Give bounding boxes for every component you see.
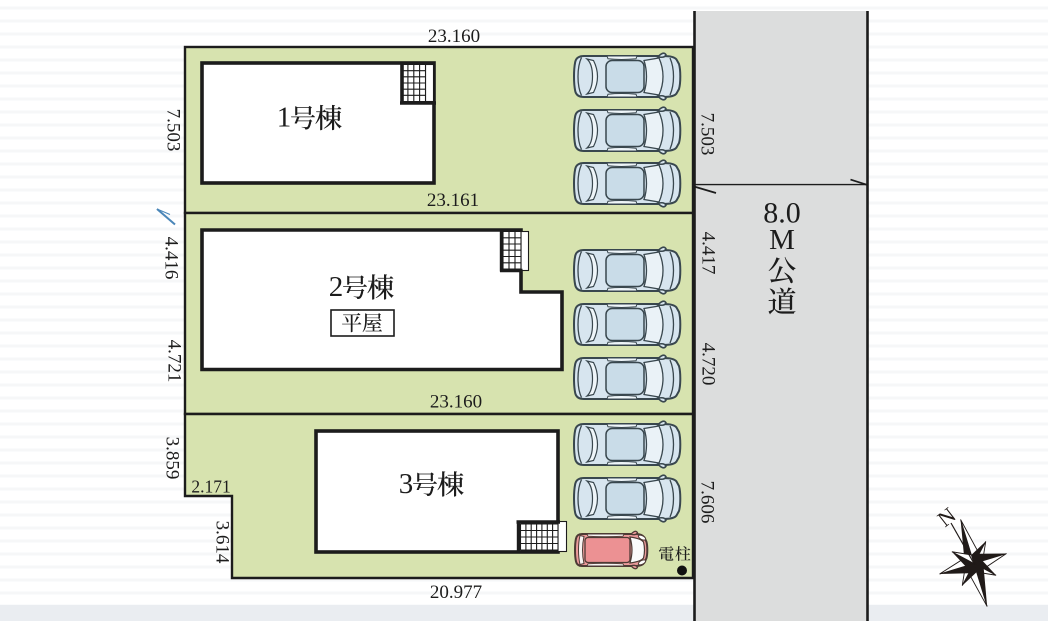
svg-text:23.161: 23.161 — [427, 190, 479, 211]
svg-text:7.503: 7.503 — [163, 109, 184, 152]
svg-text:7.606: 7.606 — [697, 481, 718, 524]
svg-text:3.614: 3.614 — [212, 521, 233, 564]
svg-text:M: M — [769, 224, 795, 256]
svg-text:23.160: 23.160 — [428, 26, 480, 47]
svg-text:7.503: 7.503 — [697, 113, 718, 156]
svg-text:4.721: 4.721 — [164, 340, 185, 383]
svg-text:23.160: 23.160 — [430, 392, 482, 413]
svg-text:2: 2 — [329, 271, 344, 303]
svg-text:3.859: 3.859 — [162, 437, 183, 480]
svg-text:4.417: 4.417 — [698, 232, 719, 275]
svg-text:4.720: 4.720 — [698, 343, 719, 386]
svg-text:1: 1 — [277, 102, 292, 134]
svg-text:3: 3 — [399, 468, 414, 500]
svg-text:4.416: 4.416 — [161, 237, 182, 280]
svg-text:2.171: 2.171 — [191, 477, 230, 497]
svg-text:20.977: 20.977 — [430, 582, 482, 603]
